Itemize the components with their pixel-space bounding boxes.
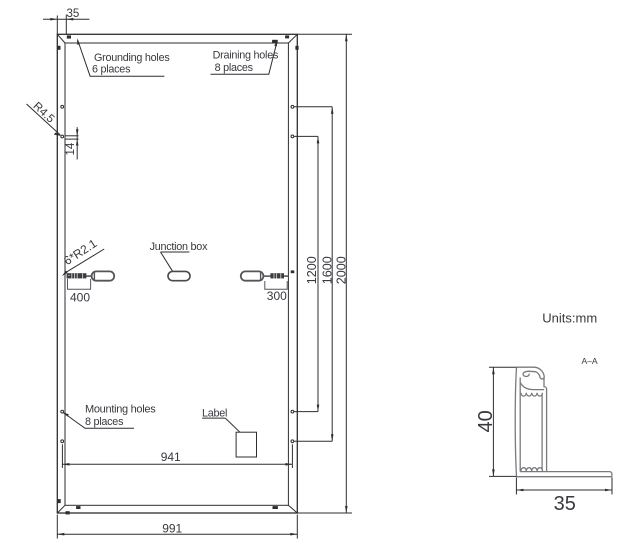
svg-text:Draining holes: Draining holes <box>213 50 279 62</box>
svg-text:2000: 2000 <box>334 256 348 284</box>
svg-text:8 places: 8 places <box>85 416 124 428</box>
svg-text:400: 400 <box>70 291 90 305</box>
svg-text:Junction box: Junction box <box>150 241 208 253</box>
svg-text:300: 300 <box>267 289 287 303</box>
svg-text:35: 35 <box>67 8 80 20</box>
svg-text:1200: 1200 <box>305 256 319 284</box>
svg-text:40: 40 <box>475 410 497 432</box>
svg-text:14: 14 <box>65 142 77 155</box>
svg-text:1600: 1600 <box>321 256 335 284</box>
svg-text:R4.5: R4.5 <box>30 100 56 125</box>
svg-text:8 places: 8 places <box>215 62 254 74</box>
svg-text:Mounting holes: Mounting holes <box>85 404 156 416</box>
svg-text:Label: Label <box>202 408 227 420</box>
svg-text:6 places: 6 places <box>92 64 131 76</box>
svg-text:Units:mm: Units:mm <box>542 311 597 326</box>
svg-text:A–A: A–A <box>582 356 598 366</box>
svg-text:Grounding holes: Grounding holes <box>94 52 170 64</box>
svg-text:35: 35 <box>554 493 576 515</box>
svg-text:991: 991 <box>162 522 182 536</box>
svg-text:941: 941 <box>161 450 181 464</box>
